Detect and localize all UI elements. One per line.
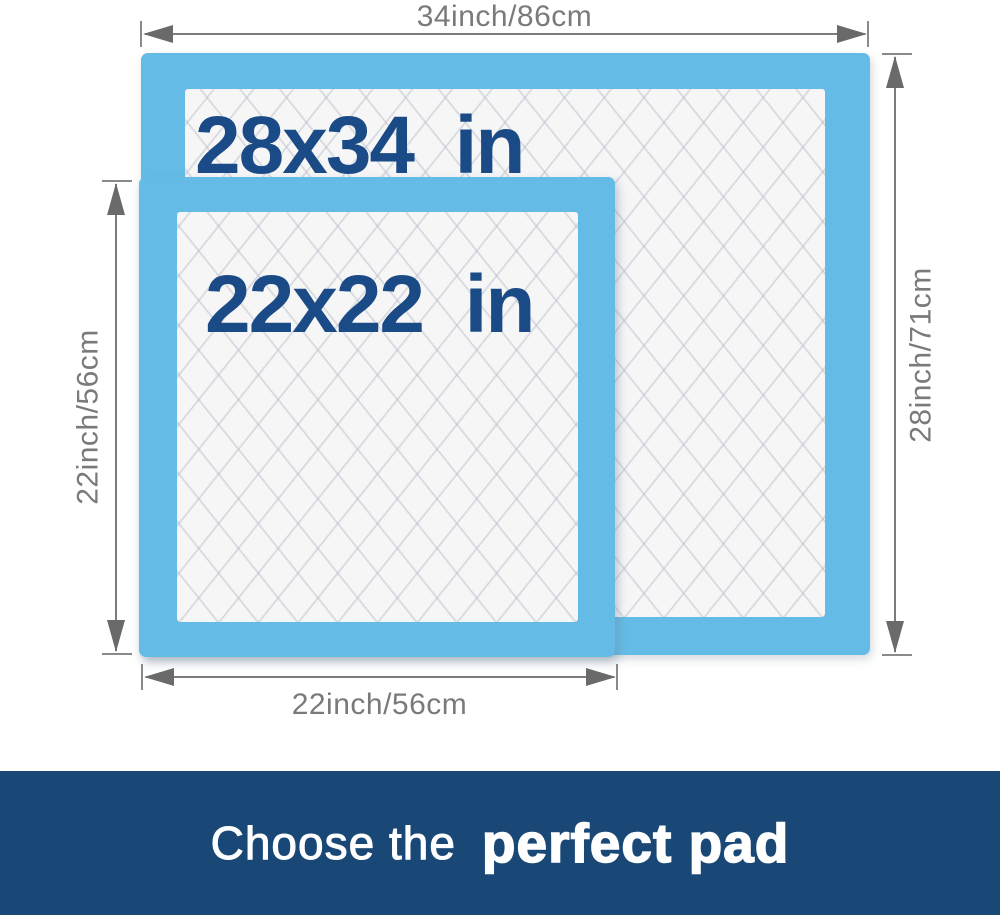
- right-dimension-label: 28inch/71cm: [905, 267, 938, 443]
- left-dimension-label: 22inch/56cm: [72, 329, 105, 505]
- small-pad: 22x22 in: [139, 177, 615, 657]
- product-size-diagram: 28x34 in 22x22 in 34inch/86cm 28inch/71c…: [0, 0, 1000, 915]
- banner-text-bold: perfect pad: [482, 811, 789, 875]
- small-pad-size-label: 22x22 in: [205, 264, 533, 346]
- bottom-dimension-label: 22inch/56cm: [142, 688, 617, 721]
- top-dimension-arrow: [129, 20, 881, 50]
- left-dimension-arrow: [100, 174, 136, 660]
- small-pad-quilted-core: 22x22 in: [177, 212, 578, 622]
- large-pad-size-label: 28x34 in: [195, 105, 523, 187]
- bottom-banner: Choose the perfect pad: [0, 771, 1000, 915]
- banner-text-regular: Choose the: [211, 816, 456, 870]
